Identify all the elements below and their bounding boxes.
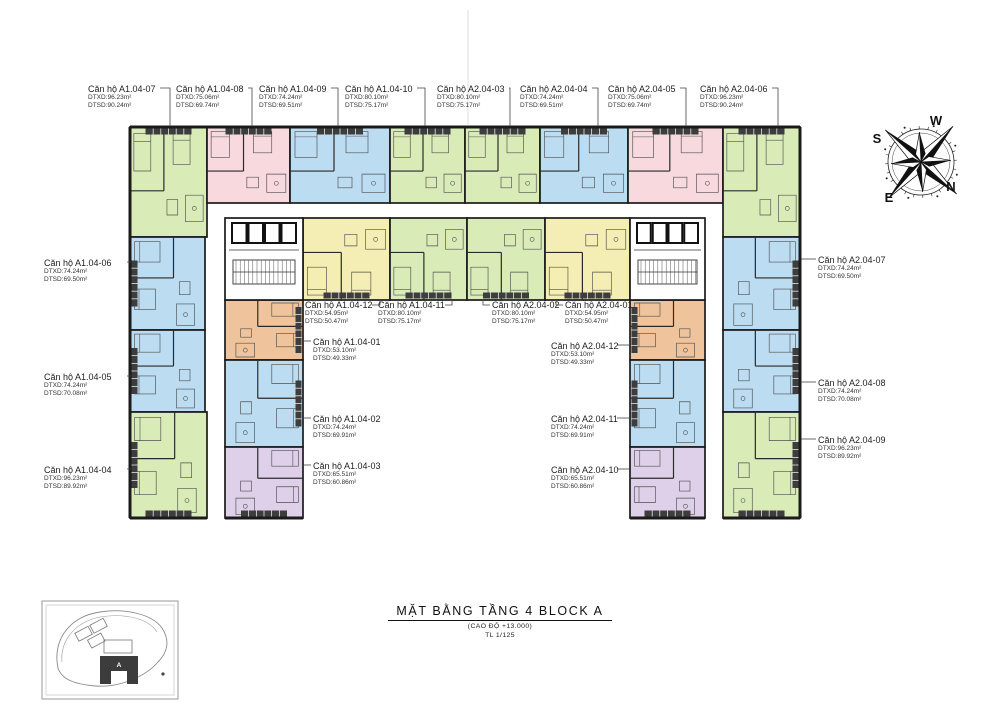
unit-A2.04-10	[630, 447, 705, 518]
unit-dtsd: DTSD:69.91m²	[313, 432, 381, 440]
leader-line	[772, 88, 778, 126]
unit-name: Căn hộ A1.04-10	[345, 84, 413, 94]
compass-letter-e: E	[885, 190, 894, 205]
unit-label-A1.04-05: Căn hộ A1.04-05DTXD:74.24m²DTSD:70.08m²	[44, 372, 112, 398]
unit-label-A1.04-01: Căn hộ A1.04-01DTXD:53.10m²DTSD:49.33m²	[313, 337, 381, 363]
leader-line	[248, 88, 252, 126]
unit-dtsd: DTSD:75.17m²	[437, 102, 505, 110]
unit-dtsd: DTSD:69.50m²	[44, 276, 112, 284]
unit-dtsd: DTSD:69.91m²	[551, 432, 618, 440]
unit-name: Căn hộ A2.04-03	[437, 84, 505, 94]
unit-dtsd: DTSD:89.92m²	[44, 483, 112, 491]
scale-note: TL 1/125	[0, 632, 1000, 639]
unit-dtxd: DTXD:65.51m²	[551, 475, 619, 483]
unit-name: Căn hộ A1.04-02	[313, 414, 381, 424]
unit-label-A1.04-09: Căn hộ A1.04-09DTXD:74.24m²DTSD:69.51m²	[259, 84, 327, 110]
unit-label-A2.04-05: Căn hộ A2.04-05DTXD:75.06m²DTSD:69.74m²	[608, 84, 676, 110]
elevator-shaft	[684, 223, 698, 243]
unit-name: Căn hộ A2.04-01	[565, 300, 633, 310]
unit-dtsd: DTSD:69.51m²	[520, 102, 588, 110]
unit-dtsd: DTSD:90.24m²	[88, 102, 156, 110]
unit-name: Căn hộ A1.04-03	[313, 461, 381, 471]
unit-dtxd: DTXD:54.95m²	[305, 310, 373, 318]
unit-A2.04-04	[540, 127, 628, 203]
unit-dtsd: DTSD:75.17m²	[492, 318, 560, 326]
unit-dtsd: DTSD:69.74m²	[176, 102, 244, 110]
unit-label-A2.04-08: Căn hộ A2.04-08DTXD:74.24m²DTSD:70.08m²	[818, 378, 886, 404]
unit-dtxd: DTXD:74.24m²	[520, 94, 588, 102]
unit-name: Căn hộ A2.04-08	[818, 378, 886, 388]
unit-dtxd: DTXD:96.23m²	[818, 445, 886, 453]
compass-letter-s: S	[873, 131, 882, 146]
unit-name: Căn hộ A2.04-02	[492, 300, 560, 310]
unit-label-A2.04-09: Căn hộ A2.04-09DTXD:96.23m²DTSD:89.92m²	[818, 435, 886, 461]
unit-A1.04-08	[207, 127, 290, 203]
site-entry-dot	[161, 672, 164, 675]
unit-name: Căn hộ A1.04-04	[44, 465, 112, 475]
elevator-shaft	[637, 223, 651, 243]
unit-dtxd: DTXD:74.24m²	[44, 268, 112, 276]
unit-label-A2.04-10: Căn hộ A2.04-10DTXD:65.51m²DTSD:60.86m²	[551, 465, 619, 491]
elevator-shaft	[249, 223, 264, 243]
unit-dtsd: DTSD:49.33m²	[313, 355, 381, 363]
unit-label-A1.04-04: Căn hộ A1.04-04DTXD:96.23m²DTSD:89.92m²	[44, 465, 112, 491]
unit-dtsd: DTSD:89.92m²	[818, 453, 886, 461]
unit-name: Căn hộ A1.04-11	[378, 300, 445, 310]
unit-dtsd: DTSD:49.33m²	[551, 359, 619, 367]
elevator-shaft	[669, 223, 683, 243]
unit-dtxd: DTXD:96.23m²	[44, 475, 112, 483]
unit-name: Căn hộ A2.04-07	[818, 255, 886, 265]
unit-dtxd: DTXD:80.10m²	[492, 310, 560, 318]
unit-dtsd: DTSD:70.08m²	[818, 396, 886, 404]
unit-dtxd: DTXD:80.10m²	[378, 310, 445, 318]
unit-dtsd: DTSD:50.47m²	[565, 318, 633, 326]
leader-line	[592, 88, 598, 126]
unit-name: Căn hộ A2.04-06	[700, 84, 768, 94]
unit-dtxd: DTXD:96.23m²	[700, 94, 768, 102]
unit-A2.04-06	[723, 127, 800, 237]
unit-label-A2.04-06: Căn hộ A2.04-06DTXD:96.23m²DTSD:90.24m²	[700, 84, 768, 110]
unit-A2.04-02	[467, 218, 545, 300]
unit-A1.04-04	[130, 412, 207, 518]
site-block-a-label: A	[117, 662, 122, 669]
unit-A1.04-06	[130, 237, 205, 330]
elevator-shaft	[653, 223, 667, 243]
unit-dtsd: DTSD:60.86m²	[551, 483, 619, 491]
floor-plan-canvas: W S N E A Căn hộ A1.04-07DTXD:96.23m²DTS…	[0, 0, 1000, 708]
unit-dtxd: DTXD:53.10m²	[313, 347, 381, 355]
unit-A2.04-03	[465, 127, 540, 203]
unit-A2.04-05	[628, 127, 723, 203]
elevator-shaft	[232, 223, 247, 243]
drawing-title: MẶT BẰNG TẦNG 4 BLOCK A	[388, 604, 611, 621]
leader-line	[160, 88, 170, 126]
unit-name: Căn hộ A2.04-11	[551, 414, 618, 424]
unit-dtsd: DTSD:90.24m²	[700, 102, 768, 110]
unit-name: Căn hộ A1.04-12	[305, 300, 373, 310]
compass-rose: W S N E	[853, 94, 989, 230]
unit-name: Căn hộ A2.04-05	[608, 84, 676, 94]
unit-A2.04-09	[723, 412, 800, 518]
unit-dtxd: DTXD:74.24m²	[259, 94, 327, 102]
unit-dtsd: DTSD:60.86m²	[313, 479, 381, 487]
leader-line	[417, 88, 425, 126]
unit-dtsd: DTSD:69.51m²	[259, 102, 327, 110]
unit-dtxd: DTXD:75.06m²	[608, 94, 676, 102]
elevator-shaft	[282, 223, 297, 243]
unit-dtxd: DTXD:74.24m²	[551, 424, 618, 432]
unit-A1.04-07	[130, 127, 207, 237]
unit-label-A2.04-03: Căn hộ A2.04-03DTXD:80.10m²DTSD:75.17m²	[437, 84, 505, 110]
unit-label-A2.04-02: Căn hộ A2.04-02DTXD:80.10m²DTSD:75.17m²	[492, 300, 560, 326]
unit-dtsd: DTSD:70.08m²	[44, 390, 112, 398]
unit-A2.04-07	[723, 237, 800, 330]
unit-label-A2.04-01: Căn hộ A2.04-01DTXD:54.95m²DTSD:50.47m²	[565, 300, 633, 326]
elevation-note: (CAO ĐỘ +13.000)	[0, 623, 1000, 630]
compass-letter-n: N	[946, 179, 955, 194]
elevator-shaft	[265, 223, 280, 243]
unit-A1.04-09	[290, 127, 390, 203]
unit-name: Căn hộ A2.04-09	[818, 435, 886, 445]
unit-label-A1.04-06: Căn hộ A1.04-06DTXD:74.24m²DTSD:69.50m²	[44, 258, 112, 284]
unit-dtsd: DTSD:75.17m²	[378, 318, 445, 326]
unit-dtxd: DTXD:53.10m²	[551, 351, 619, 359]
unit-A2.04-01	[545, 218, 630, 300]
unit-A2.04-11	[630, 360, 705, 447]
unit-A2.04-08	[723, 330, 800, 412]
unit-label-A1.04-03: Căn hộ A1.04-03DTXD:65.51m²DTSD:60.86m²	[313, 461, 381, 487]
unit-dtxd: DTXD:54.95m²	[565, 310, 633, 318]
unit-name: Căn hộ A1.04-05	[44, 372, 112, 382]
leader-line	[509, 88, 510, 126]
unit-label-A2.04-12: Căn hộ A2.04-12DTXD:53.10m²DTSD:49.33m²	[551, 341, 619, 367]
unit-label-A2.04-07: Căn hộ A2.04-07DTXD:74.24m²DTSD:69.50m²	[818, 255, 886, 281]
unit-dtxd: DTXD:75.06m²	[176, 94, 244, 102]
unit-dtxd: DTXD:65.51m²	[313, 471, 381, 479]
unit-A2.04-12	[630, 300, 705, 360]
title-block: MẶT BẰNG TẦNG 4 BLOCK A (CAO ĐỘ +13.000)…	[0, 602, 1000, 639]
unit-dtxd: DTXD:74.24m²	[818, 388, 886, 396]
unit-dtsd: DTSD:75.17m²	[345, 102, 413, 110]
compass-letter-w: W	[930, 113, 943, 128]
unit-label-A1.04-10: Căn hộ A1.04-10DTXD:80.10m²DTSD:75.17m²	[345, 84, 413, 110]
unit-dtxd: DTXD:96.23m²	[88, 94, 156, 102]
unit-name: Căn hộ A1.04-07	[88, 84, 156, 94]
unit-label-A2.04-11: Căn hộ A2.04-11DTXD:74.24m²DTSD:69.91m²	[551, 414, 618, 440]
unit-name: Căn hộ A2.04-12	[551, 341, 619, 351]
unit-dtxd: DTXD:80.10m²	[345, 94, 413, 102]
unit-label-A1.04-11: Căn hộ A1.04-11DTXD:80.10m²DTSD:75.17m²	[378, 300, 445, 326]
unit-A1.04-01	[225, 300, 303, 360]
unit-label-A1.04-02: Căn hộ A1.04-02DTXD:74.24m²DTSD:69.91m²	[313, 414, 381, 440]
unit-label-A1.04-12: Căn hộ A1.04-12DTXD:54.95m²DTSD:50.47m²	[305, 300, 373, 326]
unit-A1.04-03	[225, 447, 303, 518]
unit-dtxd: DTXD:74.24m²	[313, 424, 381, 432]
unit-A1.04-05	[130, 330, 205, 412]
unit-dtsd: DTSD:69.74m²	[608, 102, 676, 110]
unit-name: Căn hộ A1.04-01	[313, 337, 381, 347]
unit-dtxd: DTXD:74.24m²	[818, 265, 886, 273]
unit-dtxd: DTXD:80.10m²	[437, 94, 505, 102]
unit-label-A2.04-04: Căn hộ A2.04-04DTXD:74.24m²DTSD:69.51m²	[520, 84, 588, 110]
unit-dtsd: DTSD:50.47m²	[305, 318, 373, 326]
leader-line	[331, 88, 338, 126]
leader-line	[680, 88, 686, 126]
unit-label-A1.04-08: Căn hộ A1.04-08DTXD:75.06m²DTSD:69.74m²	[176, 84, 244, 110]
unit-name: Căn hộ A1.04-06	[44, 258, 112, 268]
unit-name: Căn hộ A2.04-10	[551, 465, 619, 475]
unit-A1.04-12	[303, 218, 390, 300]
unit-name: Căn hộ A1.04-09	[259, 84, 327, 94]
unit-A1.04-11	[390, 218, 467, 300]
unit-name: Căn hộ A1.04-08	[176, 84, 244, 94]
unit-A1.04-02	[225, 360, 303, 447]
unit-label-A1.04-07: Căn hộ A1.04-07DTXD:96.23m²DTSD:90.24m²	[88, 84, 156, 110]
unit-A1.04-10	[390, 127, 465, 203]
unit-dtsd: DTSD:69.50m²	[818, 273, 886, 281]
unit-name: Căn hộ A2.04-04	[520, 84, 588, 94]
unit-dtxd: DTXD:74.24m²	[44, 382, 112, 390]
